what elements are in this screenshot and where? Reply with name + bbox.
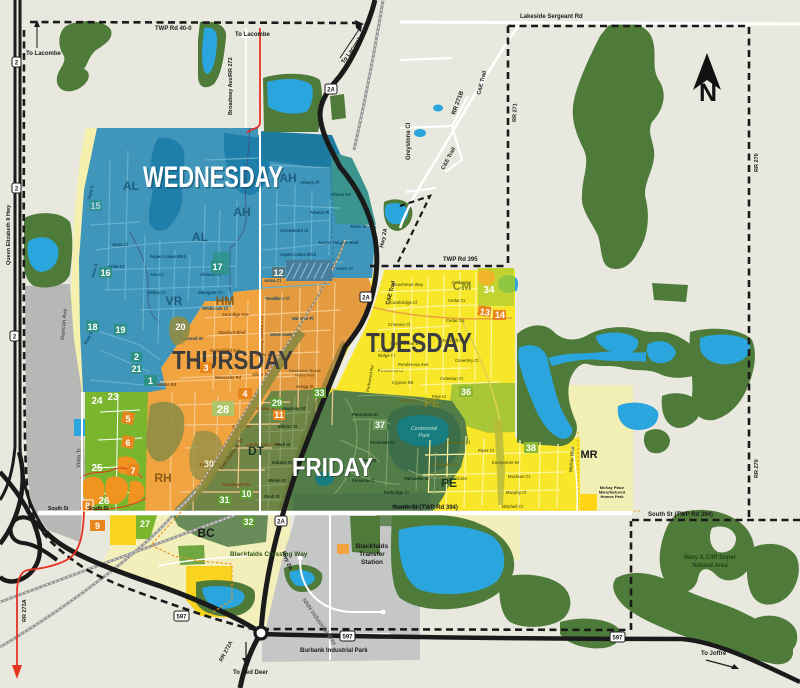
svg-text:N: N — [699, 79, 717, 107]
svg-text:Panorama Dr: Panorama Dr — [352, 412, 378, 417]
svg-text:Vista Tr: Vista Tr — [76, 447, 83, 468]
svg-text:34: 34 — [483, 285, 495, 296]
svg-text:32: 32 — [243, 517, 253, 527]
svg-text:VR: VR — [166, 294, 183, 308]
svg-text:Indiana St: Indiana St — [272, 460, 293, 465]
svg-text:2A: 2A — [277, 520, 285, 526]
svg-text:Cambridge Cl: Cambridge Cl — [390, 300, 417, 305]
svg-text:Adina Cl: Adina Cl — [264, 278, 281, 283]
svg-text:7: 7 — [130, 466, 135, 476]
svg-text:13: 13 — [479, 306, 490, 317]
svg-text:RR 270: RR 270 — [754, 153, 760, 172]
svg-text:Mitchell Cr: Mitchell Cr — [502, 504, 524, 509]
svg-text:Athens Pl: Athens Pl — [310, 210, 329, 215]
svg-text:Mary & Cliff Soper: Mary & Cliff Soper — [684, 555, 737, 561]
svg-text:Waghorn St: Waghorn St — [282, 406, 306, 411]
svg-text:16: 16 — [100, 268, 110, 278]
svg-text:AH: AH — [279, 171, 296, 185]
svg-text:Maclean Cr: Maclean Cr — [508, 474, 531, 479]
svg-text:Shull St: Shull St — [264, 494, 280, 499]
svg-text:Park: Park — [418, 433, 430, 439]
svg-text:To Red Deer: To Red Deer — [233, 670, 269, 676]
svg-text:Blackfalds: Blackfalds — [356, 543, 389, 550]
svg-text:2A: 2A — [327, 88, 335, 94]
svg-text:Centennial: Centennial — [411, 426, 438, 432]
svg-text:Burbank Industrial Park: Burbank Industrial Park — [300, 648, 368, 654]
svg-text:28: 28 — [217, 404, 229, 416]
svg-text:Greystone Cl: Greystone Cl — [406, 122, 412, 160]
svg-text:Piper Cl: Piper Cl — [478, 448, 494, 453]
svg-text:PE: PE — [441, 476, 457, 490]
svg-text:AL: AL — [192, 230, 208, 244]
svg-text:14: 14 — [495, 310, 505, 320]
svg-text:9: 9 — [95, 521, 100, 531]
svg-text:17: 17 — [212, 262, 222, 272]
svg-text:Eastpointe Dr: Eastpointe Dr — [432, 462, 460, 467]
svg-text:2A: 2A — [362, 296, 370, 302]
svg-text:30: 30 — [204, 459, 214, 469]
svg-text:Cyprus Rd: Cyprus Rd — [392, 380, 414, 385]
svg-text:Cedar Cr: Cedar Cr — [448, 298, 466, 303]
svg-text:CM: CM — [453, 279, 472, 293]
svg-text:HM: HM — [216, 294, 235, 308]
svg-text:Murphy Cl: Murphy Cl — [506, 490, 526, 495]
svg-text:Aztec St: Aztec St — [350, 224, 367, 229]
svg-text:38: 38 — [526, 443, 536, 453]
svg-text:Sunridge Ave: Sunridge Ave — [222, 312, 249, 317]
svg-text:Coventry Cl: Coventry Cl — [455, 358, 479, 363]
svg-text:Pondside Cr: Pondside Cr — [370, 440, 395, 445]
svg-text:24: 24 — [91, 396, 103, 407]
svg-text:Winko St: Winko St — [268, 478, 286, 483]
svg-text:597: 597 — [176, 615, 187, 621]
svg-text:TWP Rd 395: TWP Rd 395 — [443, 257, 478, 263]
svg-text:Athens Rd: Athens Rd — [330, 192, 351, 197]
svg-text:South St (TWP Rd 394): South St (TWP Rd 394) — [648, 512, 713, 518]
svg-text:23: 23 — [107, 392, 119, 403]
svg-text:36: 36 — [461, 387, 471, 397]
svg-text:PE: PE — [424, 396, 440, 410]
svg-text:597: 597 — [612, 636, 623, 642]
svg-text:Home Park: Home Park — [295, 374, 316, 378]
svg-text:Stanford Blvd: Stanford Blvd — [218, 330, 246, 335]
svg-text:BC: BC — [197, 526, 215, 540]
svg-text:Valley Cr: Valley Cr — [148, 290, 166, 295]
svg-text:Ponderosa Ave: Ponderosa Ave — [398, 362, 429, 367]
svg-text:To Lacombe: To Lacombe — [235, 32, 271, 38]
svg-text:Cedar Sq: Cedar Sq — [446, 318, 465, 323]
svg-text:South St (TWP Rd 394): South St (TWP Rd 394) — [393, 505, 458, 511]
svg-text:RR 271: RR 271 — [512, 103, 519, 122]
svg-text:THURSDAY: THURSDAY — [172, 345, 293, 375]
svg-text:Palisades St: Palisades St — [404, 476, 429, 481]
svg-text:31: 31 — [219, 495, 229, 505]
svg-text:20: 20 — [175, 322, 185, 332]
svg-text:AL: AL — [123, 179, 139, 193]
svg-text:Station: Station — [361, 559, 383, 566]
svg-text:Aspen Lakes Blvd: Aspen Lakes Blvd — [280, 252, 317, 257]
svg-text:6: 6 — [125, 438, 130, 448]
svg-text:597: 597 — [342, 635, 353, 641]
svg-text:Park St: Park St — [276, 442, 291, 447]
svg-text:South St: South St — [48, 506, 69, 512]
svg-text:Aztec Cr: Aztec Cr — [336, 266, 353, 271]
svg-text:Aspen Lakes Blvd: Aspen Lakes Blvd — [150, 254, 187, 259]
svg-text:27: 27 — [140, 519, 150, 529]
svg-text:TUESDAY: TUESDAY — [366, 327, 472, 358]
svg-text:25: 25 — [91, 463, 103, 474]
svg-text:Eastpointe Dr: Eastpointe Dr — [492, 460, 520, 465]
svg-text:Natural Area: Natural Area — [692, 563, 728, 569]
svg-text:FRIDAY: FRIDAY — [292, 452, 373, 482]
svg-text:Broadwell Ave: Broadwell Ave — [222, 482, 251, 487]
svg-text:3: 3 — [203, 363, 208, 373]
svg-text:Anna Cl: Anna Cl — [112, 242, 128, 247]
svg-text:To Lacombe: To Lacombe — [26, 51, 62, 57]
svg-text:South St: South St — [88, 506, 109, 512]
svg-text:Womacks Rd: Womacks Rd — [215, 375, 242, 380]
svg-text:37: 37 — [375, 420, 385, 430]
svg-text:Blackfalds Mobile: Blackfalds Mobile — [289, 369, 321, 373]
svg-text:Parkridge Cr: Parkridge Cr — [384, 490, 410, 495]
svg-text:5: 5 — [125, 414, 130, 424]
svg-text:Lakeside Sergeant Rd: Lakeside Sergeant Rd — [520, 14, 583, 20]
svg-text:To Joffre: To Joffre — [701, 651, 727, 657]
svg-text:12: 12 — [273, 268, 283, 278]
svg-text:Athens Pl: Athens Pl — [300, 180, 319, 185]
svg-text:MR: MR — [580, 449, 597, 461]
svg-text:Queen Elizabeth II Hwy: Queen Elizabeth II Hwy — [6, 204, 12, 265]
svg-text:Aurora Heights Blvd: Aurora Heights Blvd — [318, 240, 359, 245]
svg-text:AH: AH — [233, 205, 250, 219]
svg-text:29: 29 — [272, 398, 282, 408]
svg-text:10: 10 — [241, 489, 251, 499]
svg-text:15: 15 — [90, 201, 100, 211]
svg-text:Pinetree Cl: Pinetree Cl — [448, 440, 470, 445]
svg-text:Arrowwood Cl: Arrowwood Cl — [280, 228, 308, 233]
svg-text:RH: RH — [154, 471, 171, 485]
svg-text:Gregg St: Gregg St — [296, 384, 314, 389]
svg-text:2: 2 — [134, 352, 139, 362]
svg-text:Plumtree Cr: Plumtree Cr — [398, 398, 422, 403]
svg-text:Homes Park: Homes Park — [600, 494, 624, 499]
svg-text:Ava Cr: Ava Cr — [150, 272, 164, 277]
svg-text:33: 33 — [314, 388, 324, 398]
svg-text:Broadway Ave/RR 272: Broadway Ave/RR 272 — [228, 57, 234, 115]
svg-text:RR 270: RR 270 — [754, 459, 760, 478]
svg-text:RR 273A: RR 273A — [22, 599, 28, 622]
svg-text:DT: DT — [248, 444, 265, 458]
svg-text:TWP Rd 40-0: TWP Rd 40-0 — [155, 26, 192, 32]
svg-text:Transfer: Transfer — [359, 551, 385, 558]
svg-text:WEDNESDAY: WEDNESDAY — [143, 161, 283, 194]
svg-text:Woodbine Cl: Woodbine Cl — [264, 296, 290, 301]
svg-text:11: 11 — [274, 410, 284, 420]
svg-text:21: 21 — [131, 364, 141, 374]
svg-text:Wilson St: Wilson St — [278, 424, 298, 429]
svg-text:Coleman Cr: Coleman Cr — [440, 376, 464, 381]
svg-text:4: 4 — [242, 389, 247, 399]
svg-text:19: 19 — [115, 325, 125, 335]
svg-text:1: 1 — [148, 376, 153, 386]
svg-text:18: 18 — [87, 322, 97, 332]
